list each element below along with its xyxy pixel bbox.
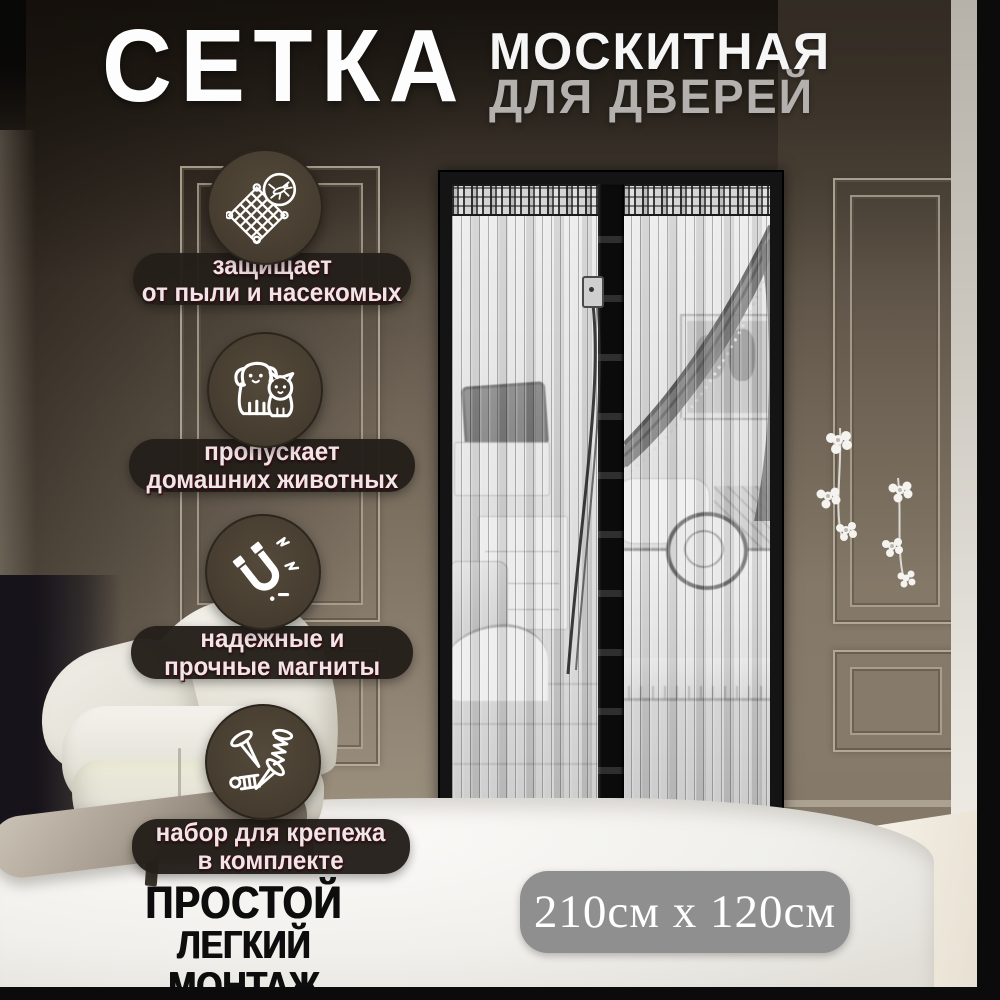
- installation-text: ПРОСТОЙ ЛЕГКИЙ МОНТАЖ: [124, 880, 365, 1000]
- ruffle-pleats: [622, 686, 770, 700]
- installation-line1: ПРОСТОЙ: [124, 880, 365, 926]
- feature-label-line: набор для крепежа: [156, 819, 386, 846]
- title-main: СЕТКА: [102, 14, 467, 117]
- feature-label-line: от пыли и насекомых: [142, 279, 402, 306]
- drawer-line: [485, 551, 559, 552]
- latch-clip: [582, 276, 604, 308]
- door-opening: [452, 184, 770, 843]
- feature-label-magnets: надежные и прочные магниты: [131, 626, 413, 679]
- mesh-panel-left: [452, 216, 598, 843]
- wall-panel-right-small-inner: [850, 667, 942, 735]
- bottom-black-edge: [0, 987, 1000, 1000]
- product-banner: СЕТКА МОСКИТНАЯ ДЛЯ ДВЕРЕЙ защищает: [0, 0, 1000, 1000]
- feature-badge-protection: [207, 149, 323, 265]
- vanity-table: [454, 442, 550, 496]
- mounting-kit-icon: [224, 723, 302, 801]
- mesh-panel-right: [622, 216, 770, 843]
- size-badge: 210см x 120см: [520, 871, 850, 953]
- feature-badge-pets: [207, 332, 323, 448]
- magnetic-screen-door: [438, 170, 784, 857]
- right-black-edge: [977, 0, 1000, 1000]
- feature-label-line: в комплекте: [198, 847, 344, 874]
- top-left-dark-edge: [0, 0, 26, 140]
- bed-ruffle: [622, 658, 770, 701]
- feature-badge-magnets: [205, 514, 321, 630]
- magnet-icon: [224, 533, 302, 611]
- title-sub-line2: ДЛЯ ДВЕРЕЙ: [489, 74, 814, 122]
- feature-label-line: домашних животных: [146, 466, 398, 493]
- vanity-mirror: [461, 381, 549, 451]
- size-text: 210см x 120см: [534, 885, 836, 939]
- pets-icon: [226, 351, 304, 429]
- feature-badge-mounting-kit: [205, 704, 321, 820]
- latch-pin: [589, 287, 594, 292]
- flower-decals: [812, 418, 942, 598]
- pillow-swirl: [684, 530, 724, 568]
- swag-curtain: [622, 216, 770, 526]
- baseboard-right: [780, 800, 954, 807]
- feature-label-line: прочные магниты: [164, 653, 380, 680]
- bed-headboard-curve: [452, 624, 548, 701]
- wall-panel-right-small: [833, 650, 959, 752]
- feature-label-mounting-kit: набор для крепежа в комплекте: [132, 819, 410, 874]
- mosquito-net-icon: [226, 168, 304, 246]
